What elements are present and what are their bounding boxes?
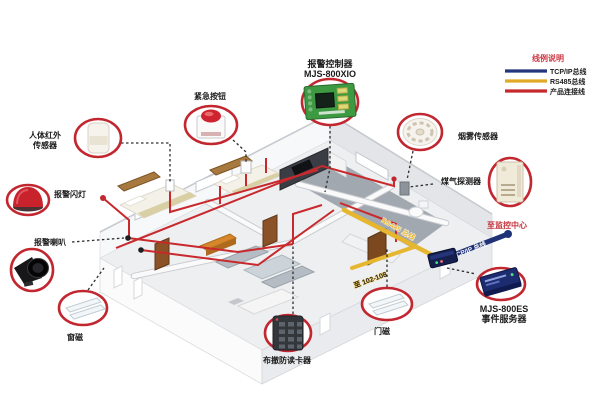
callout-pir-sensor: 人体红外 传感器 [29, 119, 121, 157]
pir-lens [90, 136, 108, 145]
bed-headboard [118, 172, 160, 191]
diagram-canvas: RS485 总线 至 102-108 TCP/IP 总线 [0, 0, 600, 400]
toilet-tank [419, 201, 428, 208]
to-monitoring-center-label: 至监控中心 [487, 220, 527, 230]
legend-label-product: 产品连接线 [550, 87, 585, 96]
gas-vent [501, 184, 515, 186]
callout-alarm-horn: 报警喇叭 [11, 237, 66, 291]
smoke-center [416, 129, 424, 135]
gas-vent [501, 189, 515, 191]
event-server-label-line2: 事件服务器 [481, 313, 527, 324]
red-node [100, 195, 106, 201]
callout-alarm-strobe: 报警闪灯 [7, 185, 86, 215]
callout-emergency-button: 紧急按钮 [185, 91, 237, 144]
callout-controller: 报警控制器 MJS-800XIO [302, 58, 358, 125]
gas-led [502, 167, 507, 172]
black-node [138, 247, 144, 253]
card-reader-label: 布撤防读卡器 [262, 355, 312, 365]
controller-label-line2: MJS-800XIO [304, 69, 356, 79]
emergency-button-cap [201, 110, 221, 123]
controller-label-line1: 报警控制器 [307, 58, 353, 69]
controller-board [304, 83, 356, 119]
window-slot [114, 266, 122, 288]
gas-wall-unit [400, 182, 409, 195]
emergency-button-label: 紧急按钮 [194, 91, 226, 101]
gas-detector-label: 煤气探测器 [441, 176, 482, 186]
legend-title: 线例说明 [532, 53, 564, 63]
red-node [391, 176, 396, 181]
pir-wall-unit [166, 180, 174, 191]
legend: 线例说明 TCP/IP总线 RS485总线 产品连接线 [505, 53, 587, 96]
smoke-sensor-label: 烟雾传感器 [458, 131, 499, 141]
horn-bell-inner [33, 263, 44, 273]
strobe-label: 报警闪灯 [54, 189, 86, 199]
door-magnet-label: 门磁 [374, 326, 390, 336]
pir-label-line1: 人体红外 [29, 130, 61, 140]
door [263, 215, 277, 247]
horn-label: 报警喇叭 [34, 237, 66, 247]
reader-led [276, 318, 279, 321]
window-magnet-label: 窗磁 [67, 332, 83, 342]
callout-window-magnet: 窗磁 [59, 291, 107, 342]
event-server-label-line1: MJS-800ES [480, 304, 529, 314]
callout-card-reader: 布撤防读卡器 [262, 315, 312, 365]
emergency-button-highlight [205, 112, 214, 116]
pir-label-line2: 传感器 [32, 140, 58, 150]
legend-label-tcpip: TCP/IP总线 [550, 67, 587, 76]
security-system-diagram: RS485 总线 至 102-108 TCP/IP 总线 [0, 0, 600, 400]
callout-event-server: MJS-800ES 事件服务器 [477, 267, 528, 324]
callout-smoke-sensor: 烟雾传感器 [398, 114, 499, 150]
emergency-button-strip [201, 132, 221, 136]
tcpip-endpoint [504, 230, 512, 238]
legend-label-rs485: RS485总线 [550, 77, 585, 86]
gas-side [517, 165, 521, 197]
gas-vent [501, 194, 515, 196]
window-slot [134, 277, 142, 299]
toilet [409, 207, 423, 217]
black-node [125, 235, 131, 241]
emergency-wall-unit [241, 161, 251, 173]
